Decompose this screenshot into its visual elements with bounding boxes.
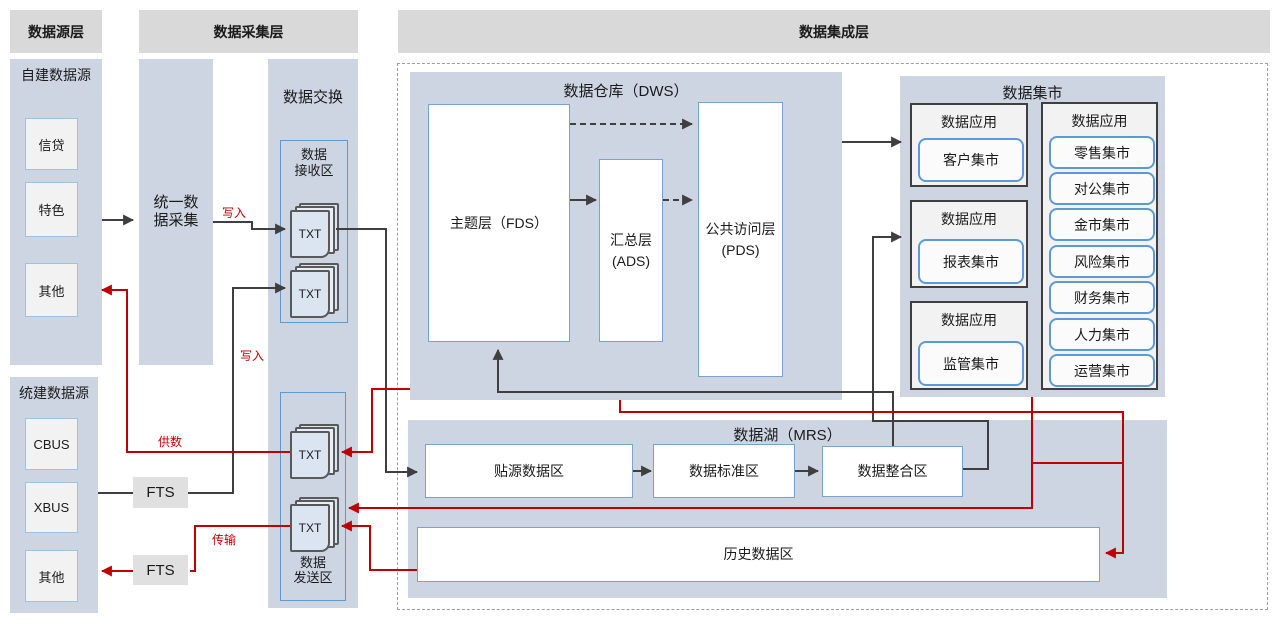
mart-app-report: 数据应用 报表集市	[910, 200, 1028, 288]
pds-node: 公共访问层 (PDS)	[698, 102, 783, 377]
source-node-special: 特色	[25, 182, 78, 237]
fts-node-top-label: FTS	[146, 484, 174, 501]
header-collect-layer-label: 数据采集层	[214, 22, 284, 42]
unified-collection-line2: 据采集	[153, 212, 198, 230]
mart-app-regulatory-title: 数据应用	[912, 310, 1026, 330]
receive-zone-line2: 接收区	[281, 163, 347, 179]
mrs-zone-source-label: 贴源数据区	[494, 461, 564, 481]
mart-pill-retail: 零售集市	[1049, 136, 1155, 169]
fts-node-bottom-label: FTS	[146, 562, 174, 579]
mrs-title: 数据湖（MRS）	[408, 424, 1167, 445]
header-integration-layer: 数据集成层	[398, 10, 1270, 53]
header-integration-layer-label: 数据集成层	[799, 22, 869, 42]
system-built-title: 统建数据源	[10, 383, 98, 403]
source-node-cbus: CBUS	[25, 418, 78, 470]
mrs-zone-integration: 数据整合区	[822, 446, 963, 497]
source-node-other-sys-label: 其他	[38, 567, 64, 586]
mart-title: 数据集市	[900, 82, 1165, 103]
source-node-cbus-label: CBUS	[33, 437, 69, 452]
mrs-container: 数据湖（MRS） 贴源数据区 数据标准区 数据整合区 历史数据区	[408, 420, 1167, 598]
mart-pill-customer-label: 客户集市	[943, 150, 999, 170]
fts-node-bottom: FTS	[133, 555, 188, 585]
pds-node-line2: (PDS)	[721, 240, 759, 260]
unified-collection-node: 统一数 据采集	[139, 59, 213, 365]
mrs-zone-history: 历史数据区	[417, 527, 1100, 582]
source-node-xbus-label: XBUS	[34, 500, 69, 515]
source-node-other-self-label: 其他	[38, 281, 64, 300]
self-built-title: 自建数据源	[10, 65, 102, 85]
flow-label-write-bottom: 写入	[240, 347, 264, 364]
mart-app-customer-title: 数据应用	[912, 112, 1026, 132]
mart-pill-finance-label: 财务集市	[1074, 288, 1130, 308]
panel-self-built-sources: 自建数据源 信贷 特色 其他	[10, 59, 102, 365]
mart-pill-report: 报表集市	[918, 239, 1024, 284]
fds-node-label: 主题层（FDS）	[450, 213, 548, 233]
flow-label-supply: 供数	[158, 433, 182, 450]
mart-pill-regulatory-label: 监管集市	[943, 354, 999, 374]
mrs-zone-standard-label: 数据标准区	[689, 461, 759, 481]
txt-file-stack-icon: TXT	[290, 203, 336, 256]
ads-node: 汇总层 (ADS)	[599, 159, 663, 342]
mart-pill-operation-label: 运营集市	[1074, 361, 1130, 381]
ads-node-line2: (ADS)	[612, 251, 650, 271]
panel-data-exchange: 数据交换 数据 接收区 TXT TXT TXT TX	[268, 59, 358, 608]
mrs-zone-history-label: 历史数据区	[724, 544, 794, 564]
source-node-credit: 信贷	[25, 118, 78, 170]
mart-container: 数据集市 数据应用 客户集市 数据应用 报表集市 数据应用 监管集市 数据应用 …	[900, 76, 1165, 397]
mart-app-list-title: 数据应用	[1043, 111, 1156, 131]
ads-node-line1: 汇总层	[610, 230, 652, 250]
receive-zone-line1: 数据	[281, 147, 347, 163]
txt-file-stack-icon: TXT	[290, 424, 336, 477]
architecture-diagram: 数据源层 数据采集层 数据集成层 自建数据源 信贷 特色 其他 统建数据源 CB…	[0, 0, 1280, 627]
mart-pill-gold: 金市集市	[1049, 208, 1155, 241]
header-source-layer-label: 数据源层	[28, 22, 84, 42]
mart-pill-finance: 财务集市	[1049, 281, 1155, 314]
source-node-other-self: 其他	[25, 263, 78, 317]
mart-app-regulatory: 数据应用 监管集市	[910, 301, 1028, 390]
flow-label-write-top: 写入	[222, 204, 246, 221]
pds-node-line1: 公共访问层	[706, 219, 776, 239]
mart-pill-risk-label: 风险集市	[1074, 252, 1130, 272]
mart-pill-risk: 风险集市	[1049, 245, 1155, 278]
send-zone-line2: 发送区	[281, 570, 345, 586]
mart-pill-corporate: 对公集市	[1049, 172, 1155, 205]
source-node-credit-label: 信贷	[38, 135, 64, 154]
mart-pill-corporate-label: 对公集市	[1074, 179, 1130, 199]
header-collect-layer: 数据采集层	[139, 10, 358, 53]
source-node-special-label: 特色	[38, 200, 64, 219]
mart-pill-regulatory: 监管集市	[918, 341, 1024, 386]
mart-pill-hr: 人力集市	[1049, 318, 1155, 351]
panel-system-built-sources: 统建数据源 CBUS XBUS 其他	[10, 377, 98, 613]
send-zone-line1: 数据	[281, 555, 345, 571]
txt-file-stack-icon: TXT	[290, 263, 336, 316]
receive-zone: 数据 接收区 TXT TXT	[280, 140, 348, 323]
mrs-zone-standard: 数据标准区	[653, 444, 795, 498]
data-exchange-title: 数据交换	[268, 86, 358, 107]
fts-node-top: FTS	[133, 477, 188, 508]
mart-pill-retail-label: 零售集市	[1074, 143, 1130, 163]
mart-app-customer: 数据应用 客户集市	[910, 103, 1028, 187]
mrs-zone-source: 贴源数据区	[425, 444, 633, 498]
flow-label-transfer: 传输	[212, 531, 236, 548]
mart-pill-customer: 客户集市	[918, 138, 1024, 182]
dws-title: 数据仓库（DWS）	[410, 80, 842, 101]
txt-label: TXT	[299, 448, 322, 462]
fds-node: 主题层（FDS）	[428, 104, 570, 342]
mart-pill-hr-label: 人力集市	[1074, 325, 1130, 345]
source-node-xbus: XBUS	[25, 482, 78, 533]
send-zone: TXT TXT 数据 发送区	[280, 392, 346, 601]
txt-label: TXT	[299, 287, 322, 301]
unified-collection-line1: 统一数	[153, 194, 198, 212]
mart-pill-operation: 运营集市	[1049, 354, 1155, 387]
header-source-layer: 数据源层	[10, 10, 102, 53]
dws-container: 数据仓库（DWS） 主题层（FDS） 汇总层 (ADS) 公共访问层 (PDS)	[410, 72, 842, 400]
mart-app-report-title: 数据应用	[912, 209, 1026, 229]
mart-pill-gold-label: 金市集市	[1074, 215, 1130, 235]
txt-label: TXT	[299, 521, 322, 535]
mart-app-list: 数据应用 零售集市 对公集市 金市集市 风险集市 财务集市 人力集市 运营集市	[1041, 102, 1158, 390]
source-node-other-sys: 其他	[25, 550, 78, 602]
txt-label: TXT	[299, 227, 322, 241]
txt-file-stack-icon: TXT	[290, 497, 336, 550]
mart-pill-report-label: 报表集市	[943, 252, 999, 272]
mrs-zone-integration-label: 数据整合区	[858, 461, 928, 481]
